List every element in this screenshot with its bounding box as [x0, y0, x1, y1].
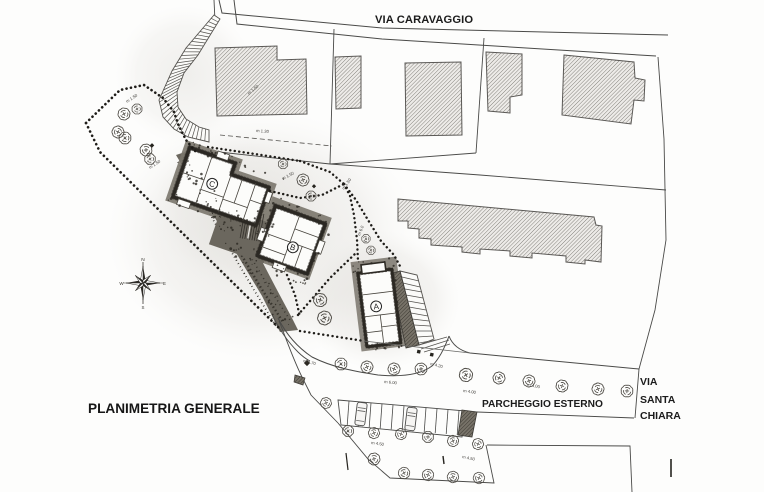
svg-text:PLANIMETRIA GENERALE: PLANIMETRIA GENERALE — [88, 401, 260, 416]
svg-text:N: N — [141, 257, 145, 263]
svg-text:E: E — [163, 281, 166, 286]
svg-text:PARCHEGGIO ESTERNO: PARCHEGGIO ESTERNO — [482, 399, 603, 410]
svg-text:VIA: VIA — [640, 376, 658, 388]
svg-text:VIA CARAVAGGIO: VIA CARAVAGGIO — [375, 14, 473, 26]
svg-text:CHIARA: CHIARA — [640, 410, 681, 422]
svg-text:SANTA: SANTA — [640, 394, 676, 406]
svg-text:S: S — [142, 305, 145, 310]
svg-text:m 1.30: m 1.30 — [256, 128, 270, 134]
